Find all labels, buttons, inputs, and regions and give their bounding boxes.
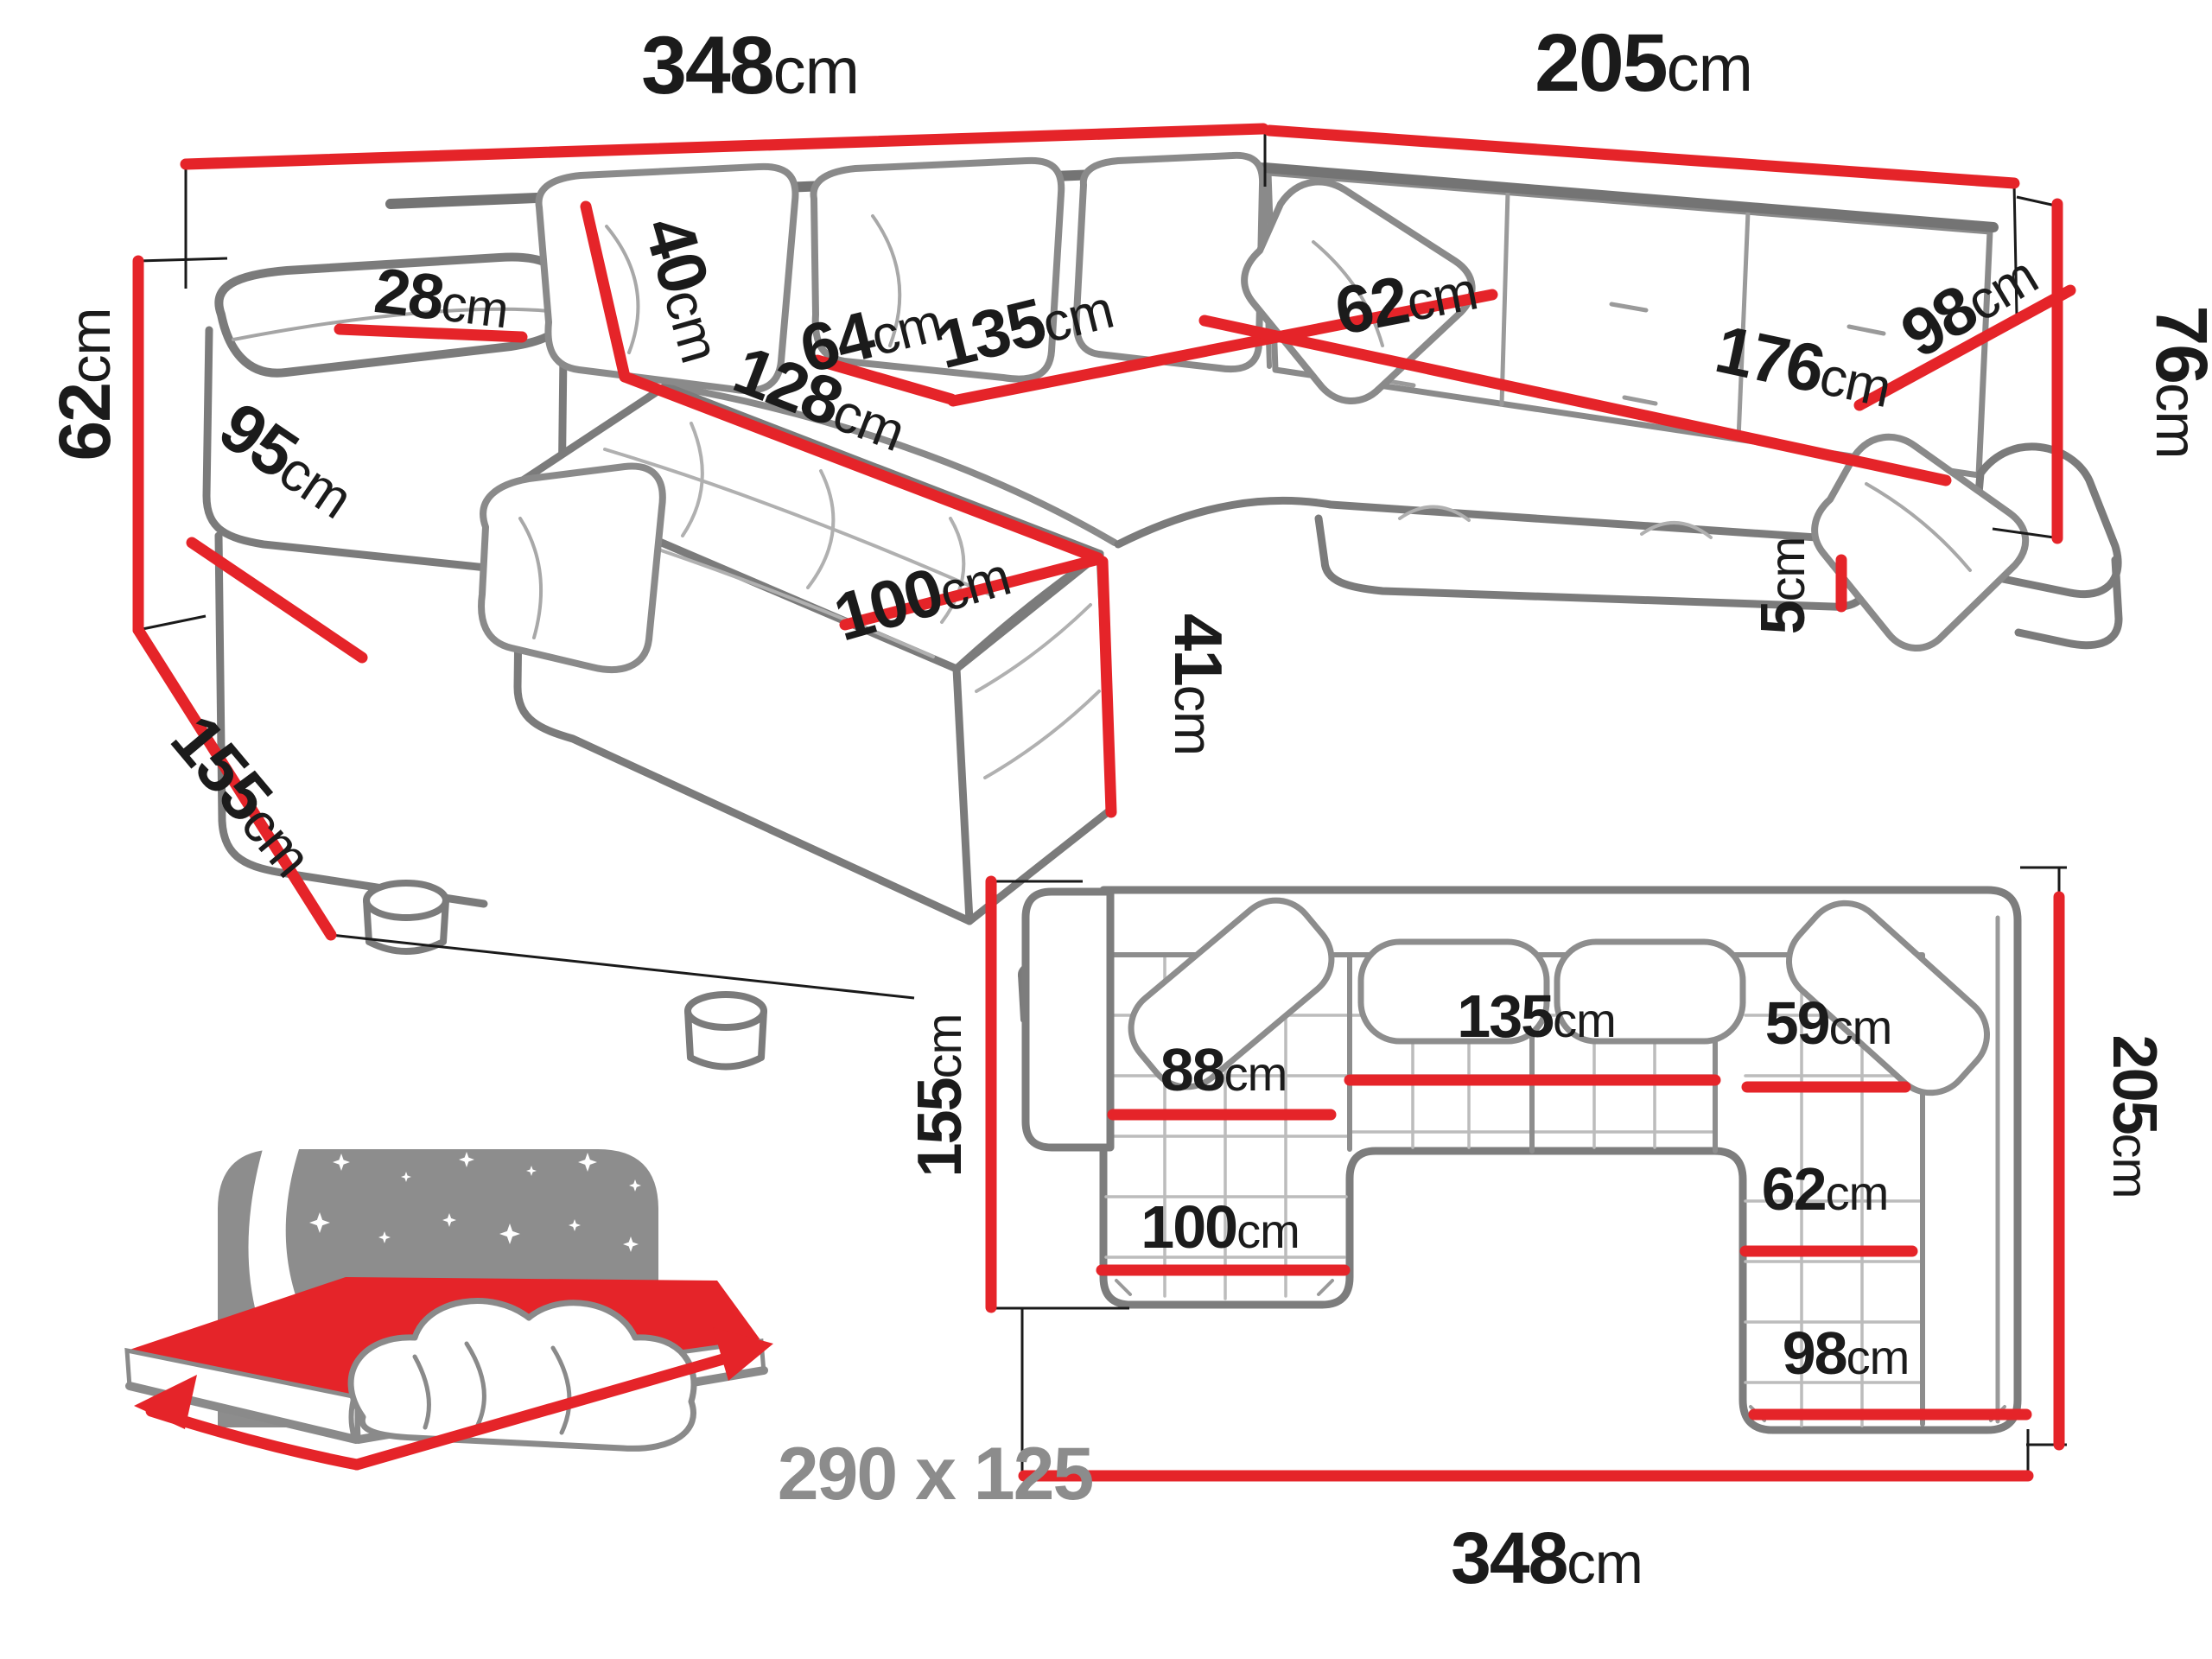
plan-59-label: 59cm (1765, 989, 1892, 1057)
dim-205-label: 205cm (1535, 17, 1752, 109)
plan-135-label: 135cm (1457, 982, 1615, 1050)
plan-left-armrest (1026, 892, 1110, 1147)
pillow-small-left (481, 467, 663, 670)
dim-348-label: 348cm (641, 20, 859, 111)
dim-62-left-label: 62cm (44, 308, 125, 461)
plan-155-label: 155cm (906, 1014, 975, 1178)
plan-98-label: 98cm (1783, 1319, 1910, 1387)
plan-205-label: 205cm (2100, 1035, 2169, 1198)
plan-348-label: 348cm (1451, 1517, 1643, 1599)
plan-100-label: 100cm (1141, 1193, 1299, 1261)
sleeping-size-label: 290 x 125 (778, 1433, 1093, 1516)
dim-95-label: 95cm (207, 387, 370, 532)
dim-76-label: 76cm (2141, 306, 2212, 459)
sleeping-area-icon (127, 1149, 773, 1465)
dim-5-label: 5cm (1749, 537, 1818, 635)
dim-348-line (186, 129, 1263, 164)
plan-88-label: 88cm (1160, 1036, 1287, 1103)
dimension-diagram-page: 348cm 205cm 62cm 76cm 95cm 155cm 28cm 40… (0, 0, 2212, 1659)
sofa-dimension-diagram: 348cm 205cm 62cm 76cm 95cm 155cm 28cm 40… (0, 0, 2212, 1659)
dim-41-label: 41cm (1160, 613, 1236, 755)
plan-62-label: 62cm (1762, 1155, 1889, 1223)
